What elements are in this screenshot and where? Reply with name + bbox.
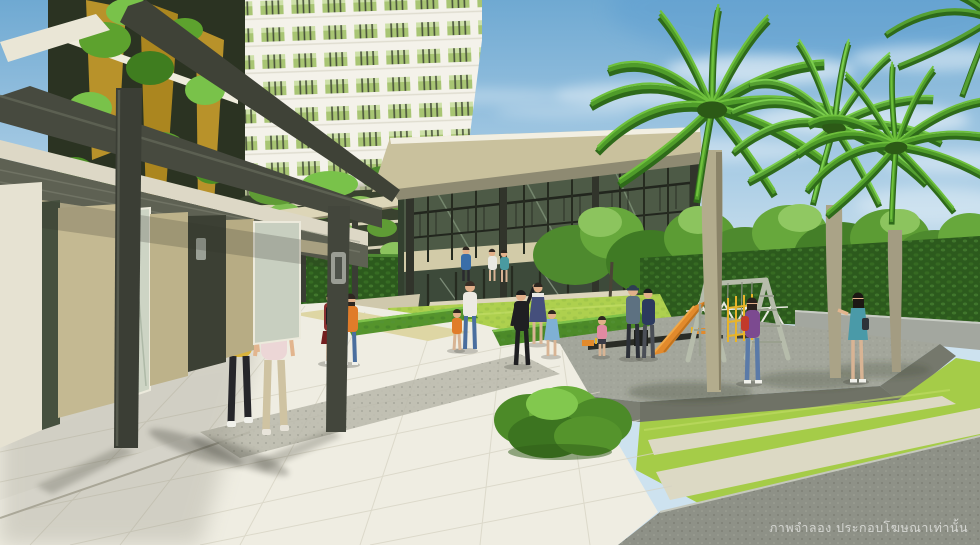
scene-root: ภาพจำลอง ประกอบโฆษณาเท่านั้น: [0, 0, 980, 545]
watermark-text: ภาพจำลอง ประกอบโฆษณาเท่านั้น: [769, 518, 968, 535]
rendering-canvas: ภาพจำลอง ประกอบโฆษณาเท่านั้น: [0, 0, 980, 545]
